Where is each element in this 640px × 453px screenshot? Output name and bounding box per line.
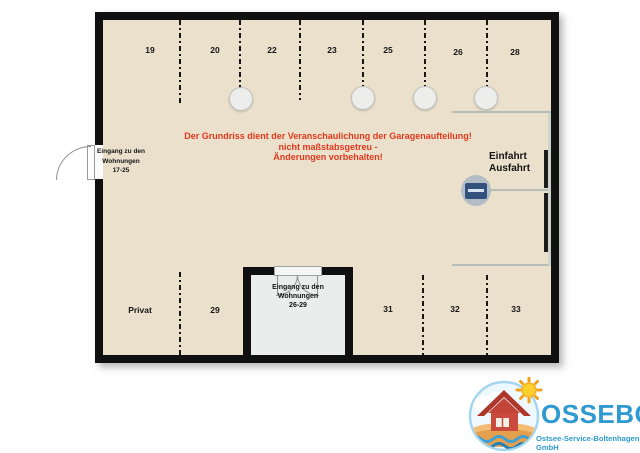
apartments-entrance-label-17-25: Eingang zu den Wohnungen 17-25 — [85, 147, 157, 176]
space-label-31: 31 — [383, 304, 392, 314]
apartments-entrance-label-26-29: Eingang zu den Wohnungen 26-29 — [252, 283, 344, 310]
space-label-23: 23 — [327, 45, 336, 55]
parking-divider-line — [179, 272, 181, 355]
entrance-label: Einfahrt — [489, 151, 530, 163]
warning-line-1: Der Grundriss dient der Veranschaulichun… — [152, 131, 504, 142]
exit-label: Ausfahrt — [489, 163, 530, 175]
entry-gate-panel — [544, 193, 548, 252]
column-pillar — [229, 87, 253, 111]
entrance-exit-label: Einfahrt Ausfahrt — [489, 151, 530, 175]
space-label-26: 26 — [453, 47, 462, 57]
warning-line-3: Änderungen vorbehalten! — [152, 152, 504, 163]
column-pillar — [413, 86, 437, 110]
parking-divider-line — [486, 275, 488, 355]
space-label-32: 32 — [450, 304, 459, 314]
space-label-28: 28 — [510, 47, 519, 57]
space-label-privat: Privat — [128, 305, 152, 315]
driveway-lane-line — [452, 111, 551, 113]
parking-divider-line — [179, 20, 181, 104]
logo-name: OSSEBO — [541, 399, 640, 430]
parking-divider-line — [299, 20, 301, 100]
gate-drive-slot — [468, 189, 484, 192]
space-label-25: 25 — [383, 45, 392, 55]
space-label-22: 22 — [267, 45, 276, 55]
garage-floorplan: 19 20 22 23 25 26 28 Privat 29 31 32 33 … — [0, 0, 640, 453]
warning-text: Der Grundriss dient der Veranschaulichun… — [152, 131, 504, 163]
ossebo-logo-icon — [467, 377, 545, 453]
space-label-20: 20 — [210, 45, 219, 55]
space-label-29: 29 — [210, 305, 219, 315]
logo-subtitle: Ostsee-Service-Boltenhagen GmbH — [536, 434, 640, 452]
driveway-lane-line — [452, 264, 551, 266]
space-label-19: 19 — [145, 45, 154, 55]
space-label-33: 33 — [511, 304, 520, 314]
entry-gate-panel — [544, 150, 548, 188]
gate-rail — [548, 113, 551, 266]
warning-line-2: nicht maßstabsgetreu - — [152, 142, 504, 153]
parking-divider-line — [422, 275, 424, 355]
column-pillar — [351, 86, 375, 110]
sun-icon — [517, 378, 541, 402]
driveway-lane-line — [489, 189, 551, 191]
column-pillar — [474, 86, 498, 110]
